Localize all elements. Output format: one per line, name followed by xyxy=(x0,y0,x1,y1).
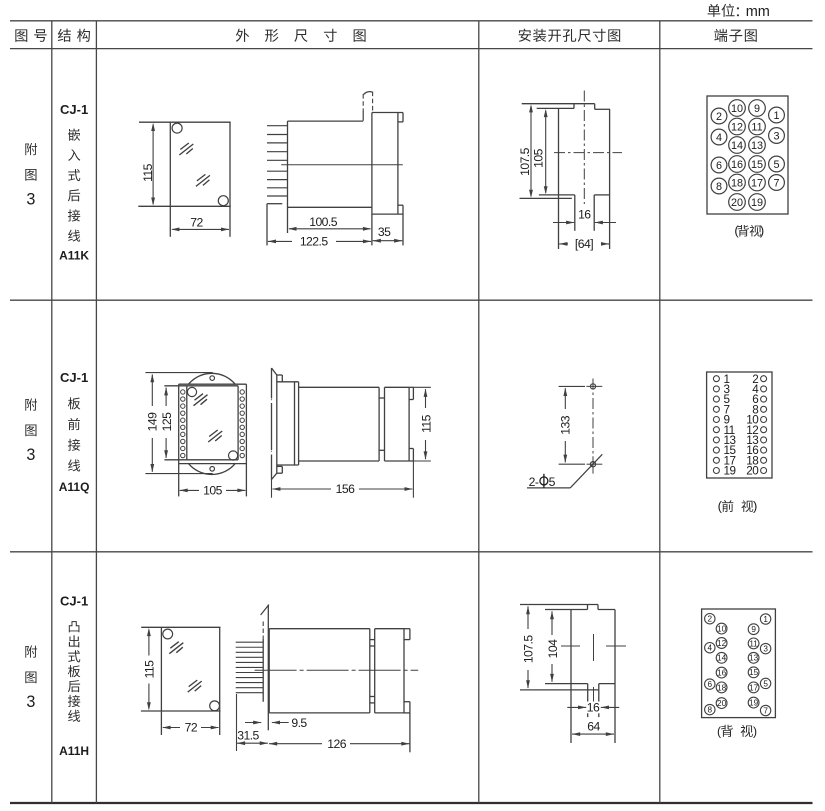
svg-text:19: 19 xyxy=(724,465,736,478)
svg-text:(: ( xyxy=(734,223,739,238)
svg-text:156: 156 xyxy=(336,482,355,496)
svg-text:13: 13 xyxy=(749,654,759,663)
svg-text:5: 5 xyxy=(773,159,779,171)
svg-text:115: 115 xyxy=(419,414,433,433)
svg-text:107.5: 107.5 xyxy=(521,635,535,664)
svg-text:12: 12 xyxy=(717,639,727,648)
svg-text:149: 149 xyxy=(145,412,159,431)
svg-text:14: 14 xyxy=(731,140,743,152)
svg-text:122.5: 122.5 xyxy=(300,235,329,249)
svg-text:13: 13 xyxy=(751,140,763,152)
svg-text:7: 7 xyxy=(763,706,768,715)
svg-text:20: 20 xyxy=(746,465,759,478)
svg-text:35: 35 xyxy=(378,225,391,239)
svg-text:18: 18 xyxy=(717,683,727,692)
svg-text:18: 18 xyxy=(731,177,743,189)
svg-text:4: 4 xyxy=(708,644,713,653)
svg-text:CJ-1: CJ-1 xyxy=(60,102,88,117)
svg-text:6: 6 xyxy=(708,680,713,689)
svg-text:): ) xyxy=(760,223,764,238)
svg-text:11: 11 xyxy=(751,121,762,133)
svg-text:CJ-1: CJ-1 xyxy=(60,594,88,609)
svg-text:10: 10 xyxy=(731,103,743,115)
svg-text:100.5: 100.5 xyxy=(309,215,338,229)
svg-text:16: 16 xyxy=(587,701,600,715)
svg-text:CJ-1: CJ-1 xyxy=(60,370,88,385)
svg-text:5: 5 xyxy=(549,475,556,489)
svg-text:125: 125 xyxy=(160,412,174,431)
svg-text:19: 19 xyxy=(749,699,759,708)
svg-text:105: 105 xyxy=(203,484,222,498)
svg-text:105: 105 xyxy=(531,148,545,167)
svg-text:115: 115 xyxy=(143,660,157,679)
svg-text:3: 3 xyxy=(26,446,35,464)
svg-text:16: 16 xyxy=(717,669,727,678)
svg-text:72: 72 xyxy=(185,721,198,735)
svg-text:31.5: 31.5 xyxy=(237,729,259,743)
svg-text:9.5: 9.5 xyxy=(291,716,307,730)
svg-text:3: 3 xyxy=(26,693,35,711)
svg-text:7: 7 xyxy=(773,177,779,189)
svg-text:9: 9 xyxy=(751,625,756,634)
svg-text:A11K: A11K xyxy=(59,249,89,263)
svg-text:3: 3 xyxy=(773,130,779,142)
svg-text:19: 19 xyxy=(751,197,763,209)
svg-text:20: 20 xyxy=(717,699,727,708)
svg-text:9: 9 xyxy=(754,103,760,115)
svg-text:10: 10 xyxy=(717,625,727,634)
svg-text:64: 64 xyxy=(587,720,600,734)
svg-text:8: 8 xyxy=(716,181,722,193)
svg-text:3: 3 xyxy=(763,645,768,654)
svg-text:): ) xyxy=(753,724,757,738)
svg-text:(: ( xyxy=(718,498,723,513)
svg-text:3: 3 xyxy=(26,190,35,208)
svg-text:104: 104 xyxy=(546,639,560,658)
svg-text:14: 14 xyxy=(717,654,727,663)
svg-text:6: 6 xyxy=(716,160,722,172)
svg-text:1: 1 xyxy=(763,615,768,624)
svg-text:16: 16 xyxy=(578,208,591,222)
svg-text:20: 20 xyxy=(731,197,743,209)
svg-text:133: 133 xyxy=(558,415,572,434)
svg-text:4: 4 xyxy=(716,132,722,144)
svg-text:[64]: [64] xyxy=(575,237,593,251)
svg-text:72: 72 xyxy=(190,216,203,230)
svg-text:12: 12 xyxy=(731,121,743,133)
svg-text:15: 15 xyxy=(751,159,763,171)
svg-text:mm: mm xyxy=(746,4,770,20)
svg-text:16: 16 xyxy=(731,159,743,171)
svg-text:11: 11 xyxy=(749,639,758,648)
svg-text:A11H: A11H xyxy=(59,744,89,758)
svg-text:15: 15 xyxy=(749,668,759,677)
svg-text:126: 126 xyxy=(327,737,346,751)
svg-text:2: 2 xyxy=(708,615,713,624)
svg-text:): ) xyxy=(753,498,757,513)
svg-text:5: 5 xyxy=(763,679,768,688)
svg-text:17: 17 xyxy=(749,683,759,692)
svg-text:1: 1 xyxy=(773,110,779,122)
svg-text:107.5: 107.5 xyxy=(518,147,532,176)
svg-text:115: 115 xyxy=(141,163,155,182)
svg-text:17: 17 xyxy=(751,177,763,189)
svg-text:2: 2 xyxy=(716,111,722,123)
svg-text:2-: 2- xyxy=(529,475,539,489)
svg-text:A11Q: A11Q xyxy=(59,480,90,494)
svg-text:(: ( xyxy=(717,724,721,738)
svg-text:8: 8 xyxy=(708,706,713,715)
